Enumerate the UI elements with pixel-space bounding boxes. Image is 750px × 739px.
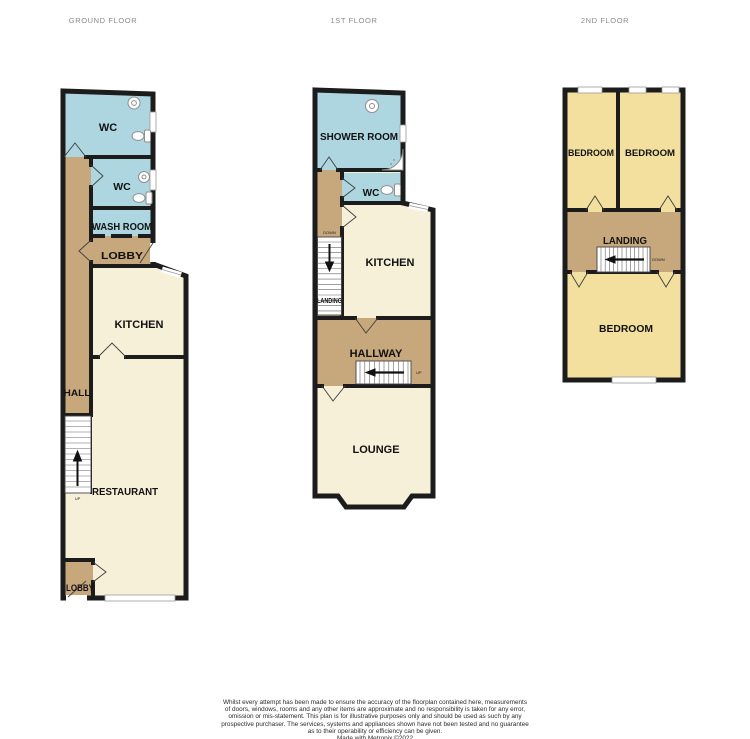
label-hall: HALL <box>64 388 91 399</box>
label-restaurant: RESTAURANT <box>92 486 159 498</box>
window-restaurant <box>105 595 175 601</box>
stairs-down-label: DOWN <box>652 257 665 262</box>
floorplan-page: GROUND FLOOR 1ST FLOOR 2ND FLOOR <box>0 0 750 739</box>
toilet-icon <box>381 186 393 195</box>
ground-floor-plan: UP WC WC WASH ROOM LOBBY KITCHEN <box>50 82 198 610</box>
window-bedroom1 <box>578 87 602 93</box>
label-wc: WC <box>363 188 380 199</box>
label-washroom: WASH ROOM <box>92 222 152 233</box>
disclaimer: Whilst every attempt has been made to en… <box>0 699 750 739</box>
second-floor-plan: DOWN BEDROOM BEDROOM LANDING BEDROOM <box>555 82 691 388</box>
window-kitchen-first <box>409 206 428 210</box>
label-kitchen: KITCHEN <box>115 319 164 331</box>
label-wc2: WC <box>113 181 131 193</box>
disclaimer-credit: Made with Metropix ©2022 <box>0 735 750 739</box>
disclaimer-line: prospective purchaser. The services, sys… <box>0 721 750 728</box>
label-lobby1: LOBBY <box>101 250 143 262</box>
room-hall <box>63 157 91 415</box>
label-landing: LANDING <box>317 296 342 305</box>
label-lobby2: LOBBY <box>66 583 95 594</box>
ground-floor-title: GROUND FLOOR <box>43 16 163 25</box>
label-wc1: WC <box>99 122 117 134</box>
window-wc2 <box>150 170 156 190</box>
toilet-icon <box>132 132 144 141</box>
label-shower: SHOWER ROOM <box>320 131 398 143</box>
stairs-down-label: DOWN <box>323 230 336 235</box>
second-floor-title: 2ND FLOOR <box>545 16 665 25</box>
label-landing: LANDING <box>603 236 647 247</box>
stairs-up-label: UP <box>416 370 422 375</box>
label-bedroom2: BEDROOM <box>625 148 675 159</box>
ground-staircase: UP <box>65 416 91 501</box>
disclaimer-line: omission or mis-statement. This plan is … <box>0 713 750 720</box>
stairs-up-label: UP <box>75 496 81 501</box>
window-wc1 <box>150 112 156 132</box>
window-bedroom2-right <box>662 87 679 93</box>
window-bedroom3 <box>612 377 656 383</box>
first-floor-plan: DOWN UP <box>305 82 445 517</box>
label-bedroom3: BEDROOM <box>599 323 653 335</box>
disclaimer-line: Whilst every attempt has been made to en… <box>0 699 750 706</box>
first-floor-title: 1ST FLOOR <box>294 16 414 25</box>
disclaimer-line: as to their operability or efficiency ca… <box>0 728 750 735</box>
disclaimer-line: of doors, windows, rooms and any other i… <box>0 706 750 713</box>
toilet-icon <box>133 194 145 203</box>
label-kitchen: KITCHEN <box>366 257 415 269</box>
label-lounge: LOUNGE <box>352 444 399 456</box>
window-shower <box>400 125 406 142</box>
label-bedroom1: BEDROOM <box>568 148 614 159</box>
window-bedroom2-left <box>629 87 646 93</box>
label-hallway: HALLWAY <box>350 348 403 360</box>
